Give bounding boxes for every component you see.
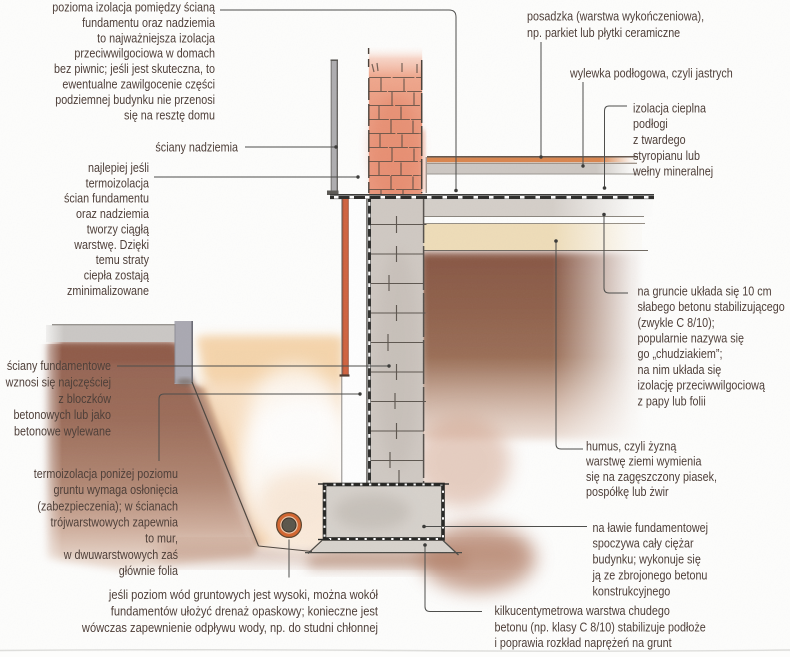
svg-text:się na zagęszczony piasek,: się na zagęszczony piasek, xyxy=(586,469,717,484)
svg-text:na gruncie układa się 10 cm: na gruncie układa się 10 cm xyxy=(638,283,772,298)
svg-text:warstwę. Dzięki: warstwę. Dzięki xyxy=(73,237,149,252)
svg-text:popularnie nazywa się: popularnie nazywa się xyxy=(638,330,745,345)
svg-text:go „chudziakiem”;: go „chudziakiem”; xyxy=(638,346,723,361)
svg-text:oraz nadziemia: oraz nadziemia xyxy=(76,206,149,221)
svg-text:podziemnej budynku nie przenos: podziemnej budynku nie przenosi xyxy=(55,92,215,107)
svg-text:tworzy ciągłą: tworzy ciągłą xyxy=(87,221,149,236)
svg-text:wylewka podłogowa, czyli jastr: wylewka podłogowa, czyli jastrych xyxy=(569,65,733,80)
svg-text:styropianu lub: styropianu lub xyxy=(633,148,700,163)
svg-text:to najważniejsza izolacja: to najważniejsza izolacja xyxy=(97,30,215,45)
svg-text:humus, czyli żyzną: humus, czyli żyzną xyxy=(586,438,677,453)
svg-text:izolacja cieplna: izolacja cieplna xyxy=(633,100,706,115)
svg-text:z twardego: z twardego xyxy=(633,132,686,147)
svg-text:trójwarstwowych zapewnia: trójwarstwowych zapewnia xyxy=(51,514,179,529)
svg-text:ściany fundamentowe: ściany fundamentowe xyxy=(7,358,111,373)
svg-text:ewentualne zawilgocenie części: ewentualne zawilgocenie części xyxy=(62,76,215,91)
svg-text:słabego betonu stabilizującego: słabego betonu stabilizującego xyxy=(638,299,785,314)
svg-text:izolację przeciwwilgociową: izolację przeciwwilgociową xyxy=(638,378,766,393)
svg-text:termoizolacja: termoizolacja xyxy=(86,175,150,190)
svg-text:(zwykle C 8/10);: (zwykle C 8/10); xyxy=(638,315,715,330)
svg-text:ściany nadziemia: ściany nadziemia xyxy=(155,139,238,154)
svg-text:pozioma izolacja pomiędzy ścia: pozioma izolacja pomiędzy ścianą xyxy=(52,0,215,15)
svg-text:wznosi się najczęściej: wznosi się najczęściej xyxy=(5,374,111,389)
svg-text:konstrukcyjnego: konstrukcyjnego xyxy=(593,583,671,598)
svg-text:betonowych lub jako: betonowych lub jako xyxy=(13,407,111,422)
svg-text:posadzka (warstwa wykończeniow: posadzka (warstwa wykończeniowa), xyxy=(527,8,704,23)
svg-text:temu straty: temu straty xyxy=(96,252,150,267)
svg-text:głównie folia: głównie folia xyxy=(119,563,178,578)
svg-text:wełny mineralnej: wełny mineralnej xyxy=(632,164,713,179)
svg-text:gruntu wymaga osłonięcia: gruntu wymaga osłonięcia xyxy=(54,482,179,497)
svg-text:termoizolacja poniżej poziomu: termoizolacja poniżej poziomu xyxy=(34,466,178,481)
svg-text:najlepiej jeśli: najlepiej jeśli xyxy=(88,160,149,175)
svg-text:betonowe wylewane: betonowe wylewane xyxy=(14,423,111,438)
svg-text:to mur,: to mur, xyxy=(145,531,178,546)
svg-text:np. parkiet lub płytki ceramic: np. parkiet lub płytki ceramiczne xyxy=(527,25,680,40)
svg-text:zminimalizowane: zminimalizowane xyxy=(67,283,149,298)
svg-text:ciepła zostają: ciepła zostają xyxy=(84,267,149,282)
svg-text:(zabezpieczenia); w ścianach: (zabezpieczenia); w ścianach xyxy=(37,498,178,513)
svg-text:fundamentu oraz nadziemia: fundamentu oraz nadziemia xyxy=(82,15,215,30)
svg-text:betonu (np. klasy C 8/10) stab: betonu (np. klasy C 8/10) stabilizuje po… xyxy=(495,619,706,634)
svg-text:pospółkę lub żwir: pospółkę lub żwir xyxy=(586,484,669,499)
svg-text:fundamentów ułożyć drenaż opas: fundamentów ułożyć drenaż opaskowy; koni… xyxy=(111,603,379,618)
svg-text:z bloczków: z bloczków xyxy=(58,391,111,406)
svg-text:ścian fundamentu: ścian fundamentu xyxy=(64,191,149,206)
svg-text:jeśli poziom wód gruntowych je: jeśli poziom wód gruntowych jest wysoki,… xyxy=(108,587,378,602)
svg-text:wówczas zapewnienie odpływu wo: wówczas zapewnienie odpływu wody, np. do… xyxy=(81,620,378,635)
svg-text:przeciwwilgociowa w domach: przeciwwilgociowa w domach xyxy=(74,46,215,61)
svg-text:kilkucentymetrowa warstwa chud: kilkucentymetrowa warstwa chudego xyxy=(495,603,671,618)
svg-text:podłogi: podłogi xyxy=(633,116,668,131)
svg-text:z papy lub folii: z papy lub folii xyxy=(638,393,706,408)
svg-text:ją ze zbrojonego betonu: ją ze zbrojonego betonu xyxy=(592,568,708,583)
svg-text:w dwuwarstwowych zaś: w dwuwarstwowych zaś xyxy=(63,547,178,562)
svg-text:budynku; wykonuje się: budynku; wykonuje się xyxy=(593,551,702,566)
svg-text:warstwę ziemi wymienia: warstwę ziemi wymienia xyxy=(585,454,702,469)
svg-text:na ławie fundamentowej: na ławie fundamentowej xyxy=(593,520,709,535)
svg-text:i poprawia rozkład naprężeń na: i poprawia rozkład naprężeń na grunt xyxy=(495,635,673,650)
svg-text:na nim układa się: na nim układa się xyxy=(638,362,722,377)
svg-text:się na resztę domu: się na resztę domu xyxy=(124,107,215,122)
svg-text:spoczywa cały ciężar: spoczywa cały ciężar xyxy=(593,536,694,551)
svg-text:bez piwnic; jeśli jest skutecz: bez piwnic; jeśli jest skuteczna, to xyxy=(54,61,215,76)
